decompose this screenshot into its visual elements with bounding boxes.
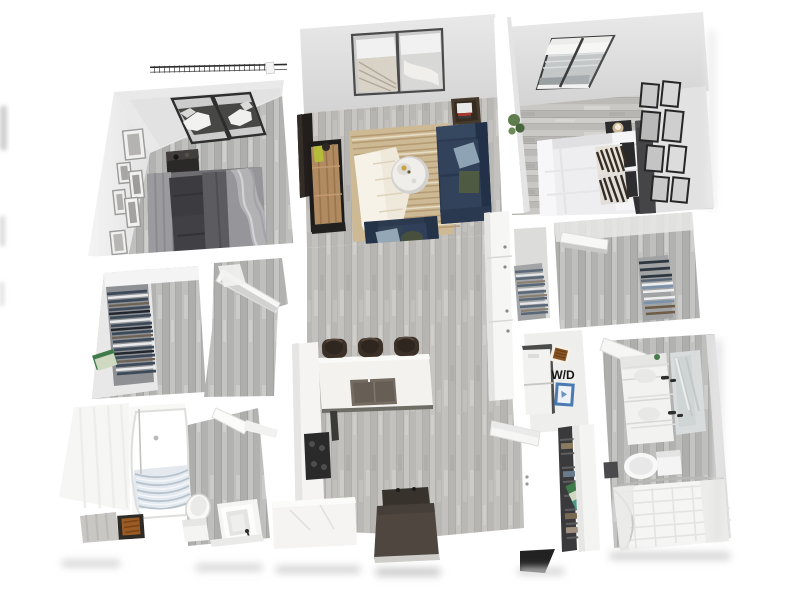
svg-text:W/D: W/D <box>551 368 575 382</box>
